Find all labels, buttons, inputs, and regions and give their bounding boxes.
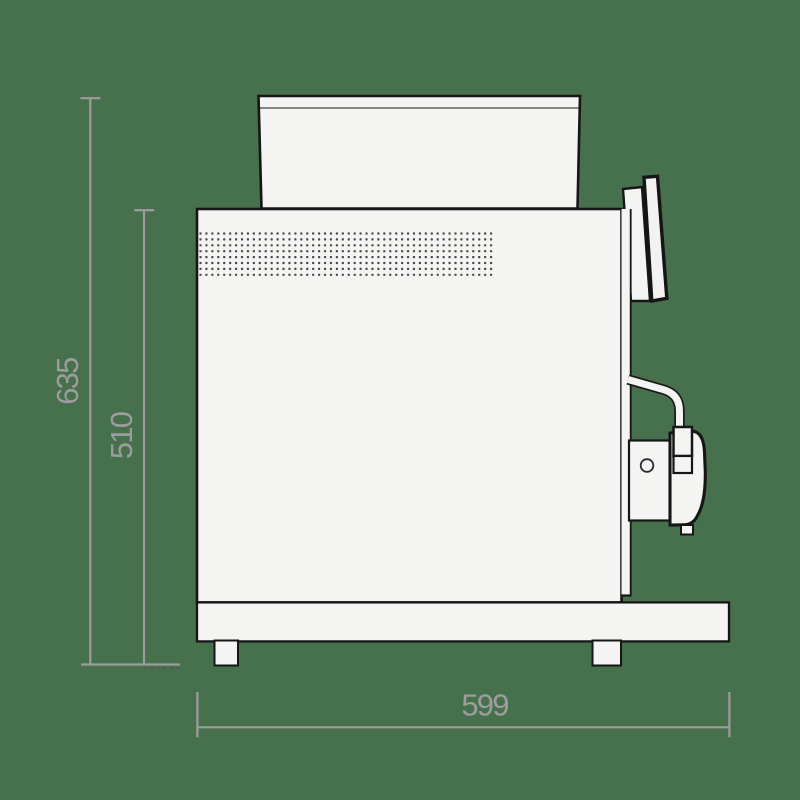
svg-text:510: 510 (104, 411, 139, 459)
svg-text:635: 635 (50, 358, 85, 405)
svg-text:599: 599 (461, 688, 508, 723)
